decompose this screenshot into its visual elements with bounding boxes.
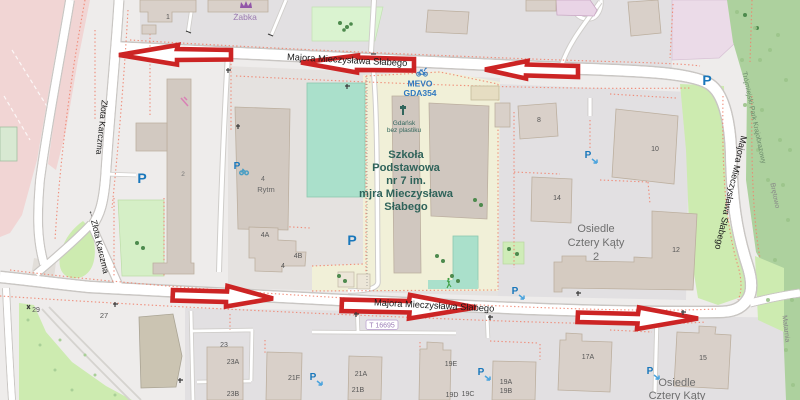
svg-text:Gdańsk: Gdańsk	[393, 120, 416, 127]
svg-text:Słabego: Słabego	[384, 201, 428, 213]
svg-text:19D: 19D	[446, 392, 459, 399]
svg-text:4B: 4B	[294, 253, 303, 260]
svg-text:23A: 23A	[227, 359, 240, 366]
svg-text:23: 23	[220, 342, 228, 349]
svg-text:P: P	[310, 372, 317, 383]
svg-text:GDA354: GDA354	[403, 88, 436, 98]
svg-text:4: 4	[261, 176, 265, 183]
svg-text:Osiedle: Osiedle	[658, 377, 695, 389]
svg-text:P: P	[585, 150, 592, 161]
svg-text:mjra Mieczysława: mjra Mieczysława	[359, 188, 454, 200]
svg-text:P: P	[234, 161, 241, 172]
svg-text:Rytm: Rytm	[257, 185, 275, 194]
svg-text:2: 2	[181, 171, 185, 178]
svg-text:P: P	[702, 72, 711, 88]
svg-text:19A: 19A	[500, 379, 513, 386]
svg-text:P: P	[512, 286, 519, 297]
svg-text:T 16695: T 16695	[369, 323, 395, 330]
svg-text:2: 2	[593, 251, 599, 263]
svg-text:19C: 19C	[462, 391, 475, 398]
svg-text:Cztery Kąty: Cztery Kąty	[568, 237, 625, 249]
svg-text:Żabka: Żabka	[233, 12, 257, 22]
svg-text:14: 14	[553, 195, 561, 202]
svg-text:bez plastiku: bez plastiku	[387, 127, 422, 134]
svg-text:29: 29	[32, 307, 40, 314]
svg-text:19E: 19E	[445, 361, 458, 368]
svg-text:P: P	[137, 170, 146, 186]
svg-text:Osiedle: Osiedle	[577, 223, 614, 235]
svg-text:1: 1	[166, 14, 170, 21]
svg-text:4: 4	[281, 263, 285, 270]
svg-text:MEVO: MEVO	[407, 79, 432, 89]
svg-text:21A: 21A	[355, 371, 368, 378]
svg-text:P: P	[347, 232, 356, 248]
svg-text:10: 10	[651, 146, 659, 153]
svg-text:Cztery Kąty: Cztery Kąty	[649, 390, 706, 400]
svg-text:4A: 4A	[261, 232, 270, 239]
svg-text:8: 8	[537, 117, 541, 124]
svg-text:12: 12	[672, 247, 680, 254]
svg-text:19B: 19B	[500, 388, 513, 395]
svg-text:Podstawowa: Podstawowa	[372, 162, 441, 174]
svg-text:23B: 23B	[227, 391, 240, 398]
svg-text:15: 15	[699, 355, 707, 362]
svg-text:17A: 17A	[582, 354, 595, 361]
svg-text:21B: 21B	[352, 387, 365, 394]
svg-text:27: 27	[100, 311, 108, 320]
svg-text:P: P	[647, 366, 654, 377]
svg-text:nr 7 im.: nr 7 im.	[386, 175, 426, 187]
svg-text:Szkoła: Szkoła	[388, 149, 424, 161]
svg-text:21F: 21F	[288, 375, 300, 382]
svg-text:P: P	[478, 367, 485, 378]
